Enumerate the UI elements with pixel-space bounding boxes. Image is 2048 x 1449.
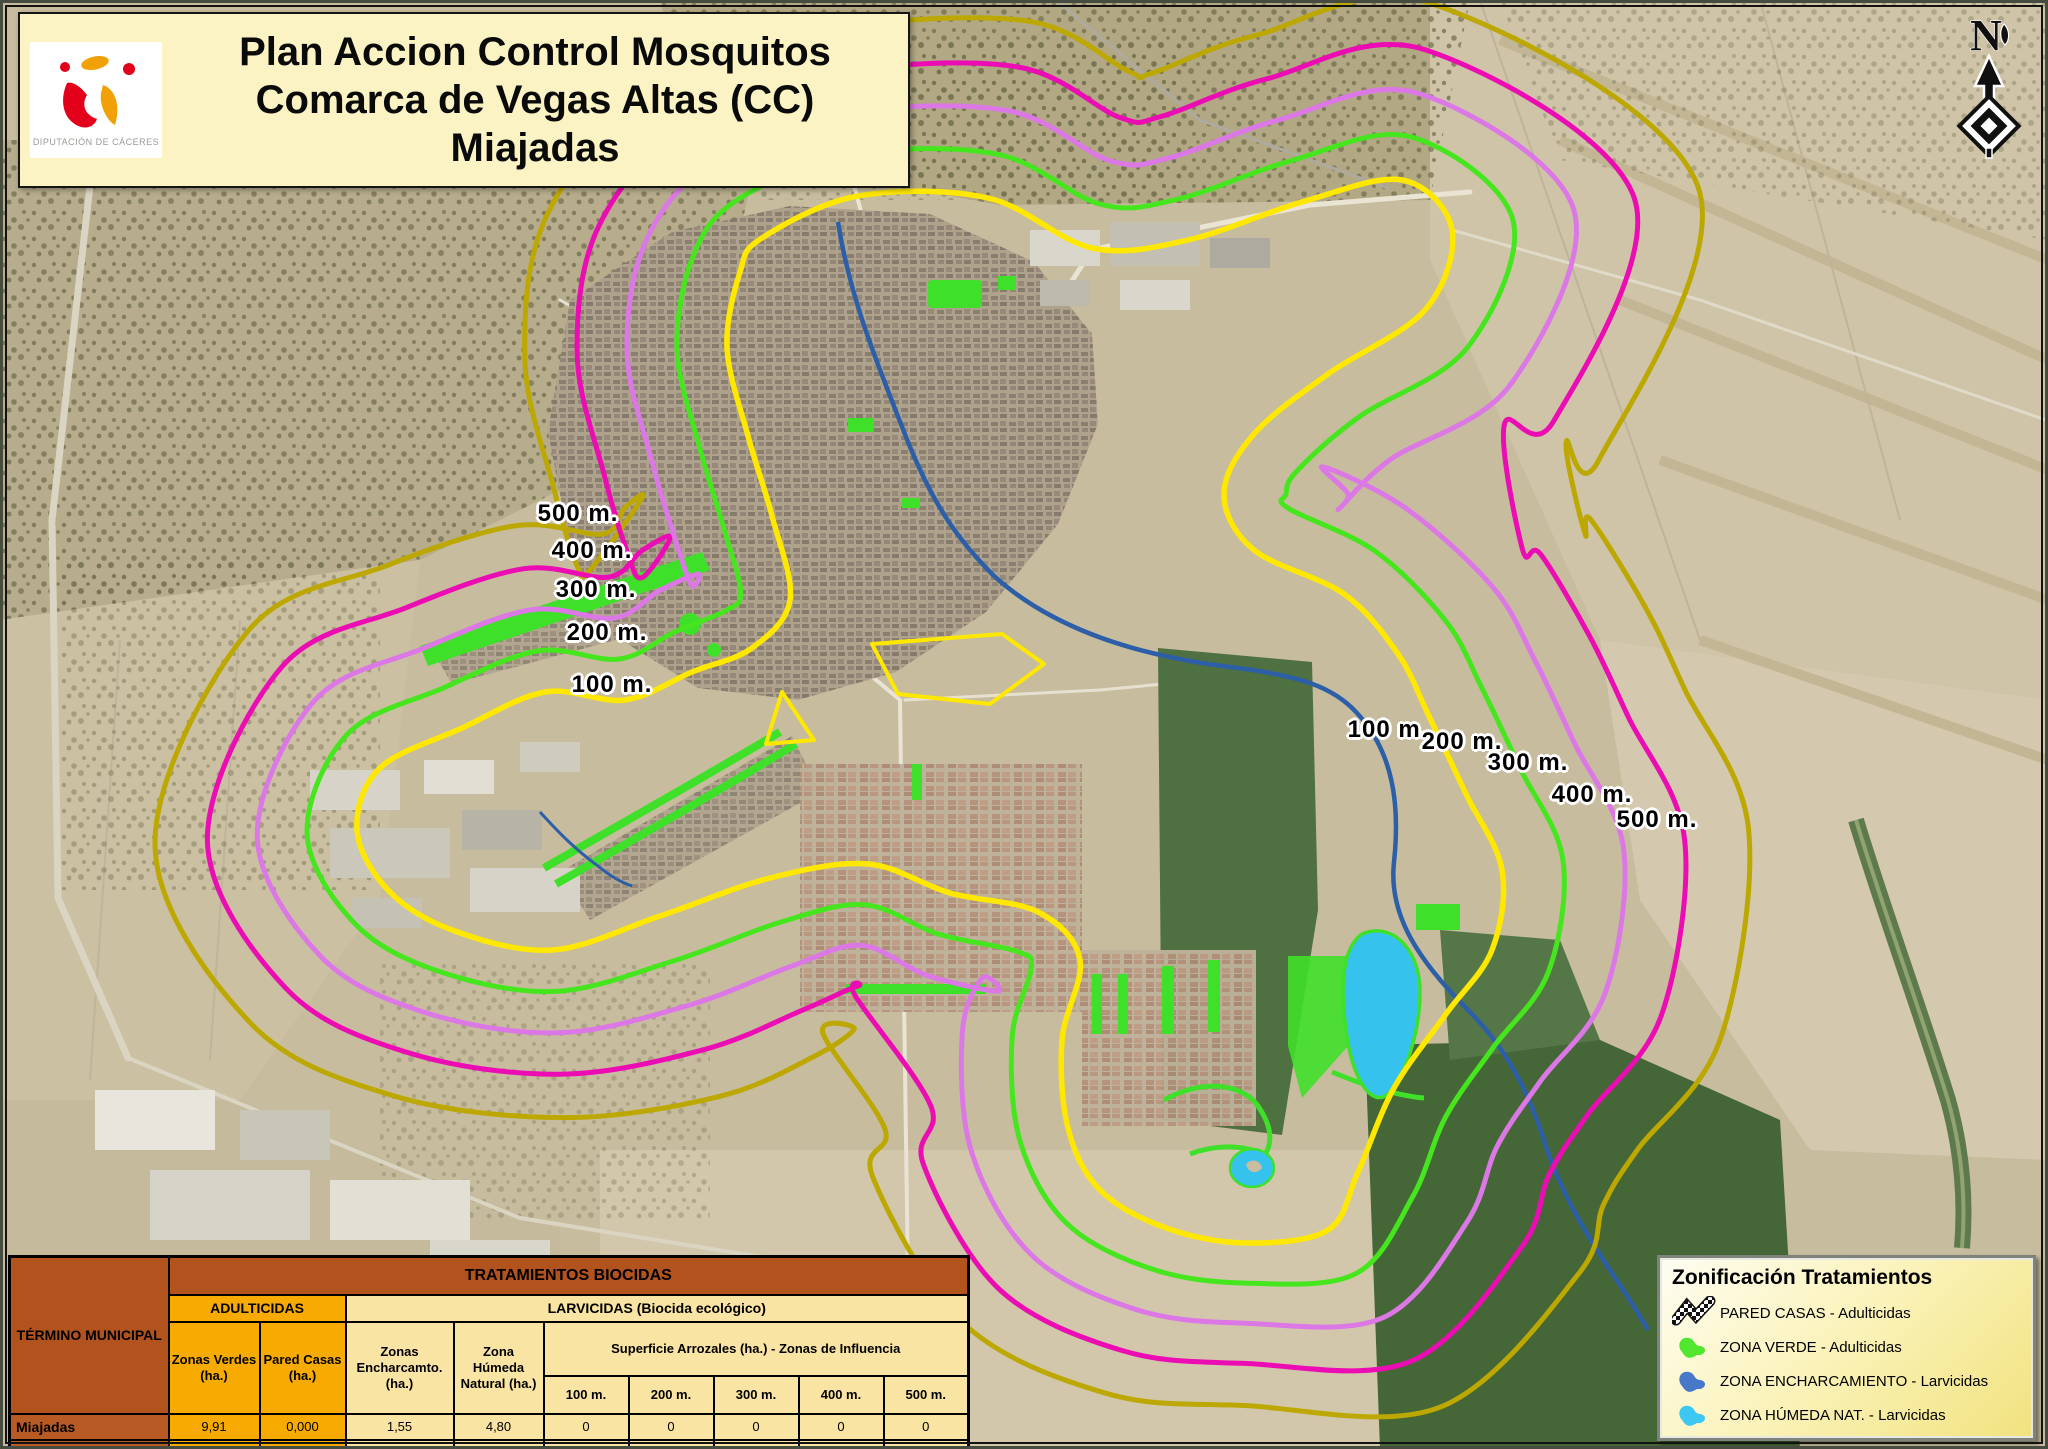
legend-title: Zonificación Tratamientos xyxy=(1672,1266,2025,1290)
ring-label-right-500: 500 m. xyxy=(1617,806,1698,834)
value-100m: 0 xyxy=(544,1414,629,1440)
title-line-1: Plan Accion Control Mosquitos xyxy=(162,28,908,76)
logo-caption: DIPUTACIÓN DE CÁCERES xyxy=(33,137,159,147)
green-zone-icon xyxy=(1672,1330,1716,1360)
north-arrow-icon: N xyxy=(1944,10,2034,160)
legend-label: ZONA ENCHARCAMIENTO - Larvicidas xyxy=(1720,1373,1988,1390)
legend-label: ZONA VERDE - Adulticidas xyxy=(1720,1339,1902,1356)
value-zona-humeda: 4,80 xyxy=(454,1414,544,1440)
ring-label-left-400: 400 m. xyxy=(552,537,633,565)
title-block: DIPUTACIÓN DE CÁCERES Plan Accion Contro… xyxy=(18,12,910,188)
value-500m: 0 xyxy=(884,1414,969,1440)
column-header-zonas-verdes: Zonas Verdes (ha.) xyxy=(169,1322,260,1414)
svg-text:N: N xyxy=(1970,11,2002,60)
municipality-cell: Miajadas xyxy=(10,1414,169,1440)
ring-label-right-300: 300 m. xyxy=(1488,749,1569,777)
ring-label-left-500: 500 m. xyxy=(538,500,619,528)
column-header-200m: 200 m. xyxy=(629,1376,714,1414)
map-page: 500 m. 400 m. 300 m. 200 m. 100 m. 100 m… xyxy=(0,0,2048,1449)
ring-label-right-400: 400 m. xyxy=(1552,781,1633,809)
ring-label-left-300: 300 m. xyxy=(556,576,637,604)
value-400m: 0 xyxy=(799,1414,884,1440)
column-header-pared-casas: Pared Casas (ha.) xyxy=(260,1322,346,1414)
table-row-miajadas: Miajadas 9,91 0,000 1,55 4,80 0 0 0 0 0 xyxy=(10,1414,969,1440)
treatments-table: TÉRMINO MUNICIPAL TRATAMIENTOS BIOCIDAS … xyxy=(8,1255,970,1449)
logo-mark-icon xyxy=(41,53,151,135)
north-arrow: N xyxy=(1944,10,2034,165)
group-header-larvicidas: LARVICIDAS (Biocida ecológico) xyxy=(346,1295,969,1322)
title-line-2: Comarca de Vegas Altas (CC) xyxy=(162,76,908,124)
legend: Zonificación Tratamientos PARED CASAS - … xyxy=(1657,1255,2036,1441)
value-zonas-verdes: 9,91 xyxy=(169,1414,260,1440)
legend-item-zona-verde: ZONA VERDE - Adulticidas xyxy=(1672,1330,2025,1364)
value-200m: 0 xyxy=(629,1414,714,1440)
aerial-map xyxy=(0,0,2048,1449)
ring-label-left-200: 200 m. xyxy=(567,619,648,647)
value-pared-casas: 0,000 xyxy=(260,1414,346,1440)
table-corner-header: TÉRMINO MUNICIPAL xyxy=(10,1257,169,1414)
map-title: Plan Accion Control Mosquitos Comarca de… xyxy=(162,28,908,172)
title-line-3: Miajadas xyxy=(162,124,908,172)
group-header-adulticidas: ADULTICIDAS xyxy=(169,1295,346,1322)
wetland-zone-icon xyxy=(1672,1398,1716,1428)
legend-item-zona-humeda: ZONA HÚMEDA NAT. - Larvicidas xyxy=(1672,1398,2025,1432)
checkered-flag-icon xyxy=(1672,1296,1716,1326)
column-header-300m: 300 m. xyxy=(714,1376,799,1414)
column-header-400m: 400 m. xyxy=(799,1376,884,1414)
table-main-header: TRATAMIENTOS BIOCIDAS xyxy=(169,1257,969,1295)
value-300m: 0 xyxy=(714,1414,799,1440)
legend-label: ZONA HÚMEDA NAT. - Larvicidas xyxy=(1720,1407,1946,1424)
waterlogging-zone-icon xyxy=(1672,1364,1716,1394)
legend-item-zona-encharcamiento: ZONA ENCHARCAMIENTO - Larvicidas xyxy=(1672,1364,2025,1398)
column-header-100m: 100 m. xyxy=(544,1376,629,1414)
legend-item-pared-casas: PARED CASAS - Adulticidas xyxy=(1672,1296,2025,1330)
diputacion-caceres-logo: DIPUTACIÓN DE CÁCERES xyxy=(30,42,162,158)
legend-label: PARED CASAS - Adulticidas xyxy=(1720,1305,1911,1322)
value-zonas-encharcamto: 1,55 xyxy=(346,1414,454,1440)
column-header-arrozales: Superficie Arrozales (ha.) - Zonas de In… xyxy=(544,1322,969,1376)
column-header-500m: 500 m. xyxy=(884,1376,969,1414)
table-row-clipped xyxy=(10,1440,969,1449)
column-header-zona-humeda: Zona Húmeda Natural (ha.) xyxy=(454,1322,544,1414)
column-header-zonas-encharcamto: Zonas Encharcamto. (ha.) xyxy=(346,1322,454,1414)
ring-label-left-100: 100 m. xyxy=(572,671,653,699)
ring-label-right-100: 100 m. xyxy=(1348,716,1429,744)
